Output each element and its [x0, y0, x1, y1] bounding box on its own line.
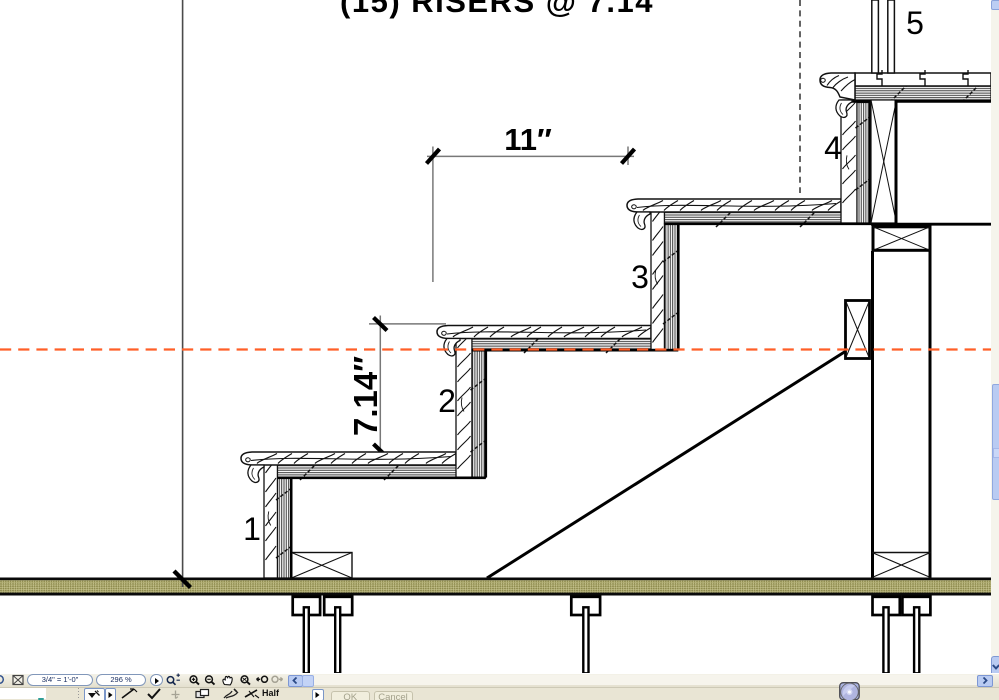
- svg-text:3: 3: [631, 259, 649, 295]
- svg-text:1: 1: [243, 511, 261, 547]
- svg-text:(15) RISERS @ 7.14: (15) RISERS @ 7.14: [340, 0, 654, 19]
- svg-text:5: 5: [906, 5, 924, 41]
- svg-text:2: 2: [438, 383, 456, 419]
- svg-text:11″: 11″: [504, 122, 552, 157]
- svg-text:4: 4: [824, 130, 842, 166]
- svg-text:7.14″: 7.14″: [347, 356, 384, 436]
